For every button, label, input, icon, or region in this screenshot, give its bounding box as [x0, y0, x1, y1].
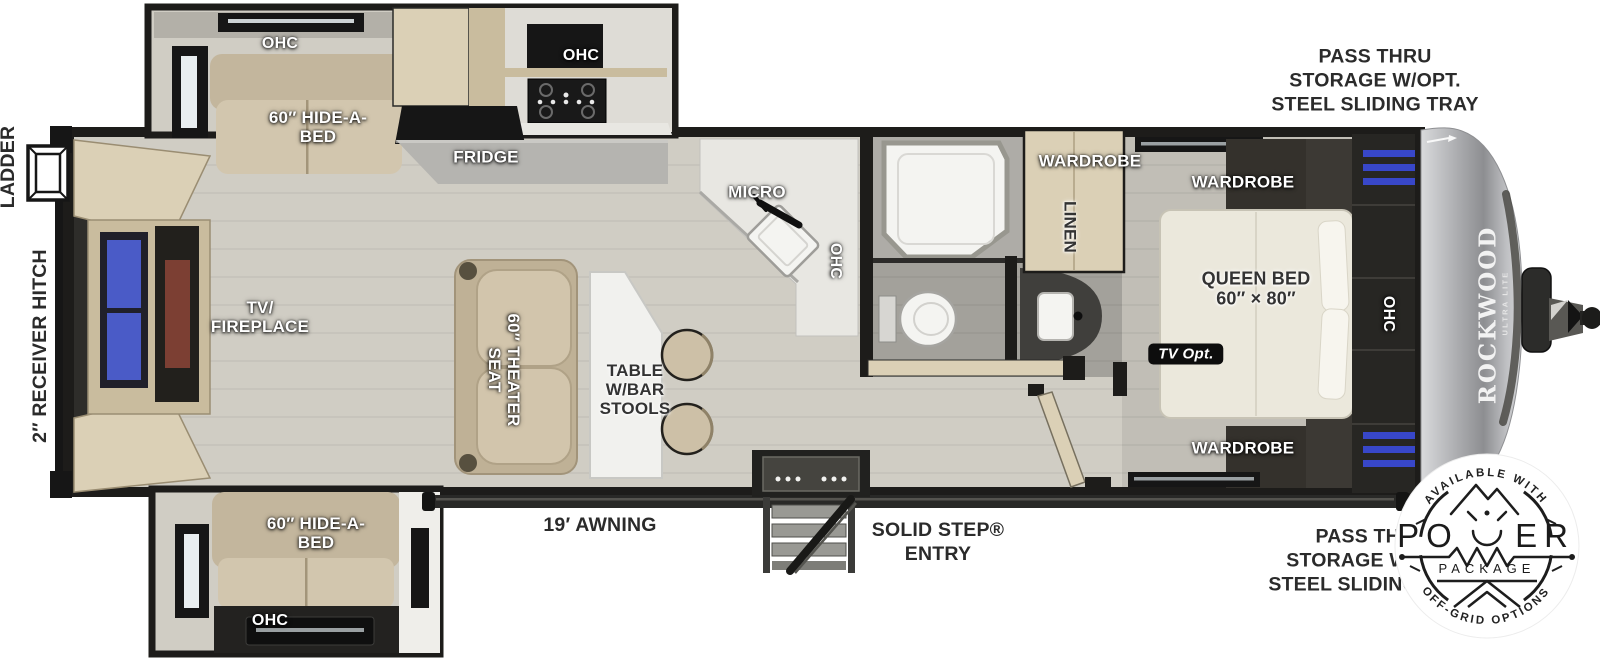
- rv-floorplan-page: PASS THRU STORAGE W/OPT. STEEL SLIDING T…: [0, 0, 1600, 661]
- power-package-badge: AVAILABLE WITH OFF-GRID OPTIONS PO ER PA…: [0, 0, 1600, 661]
- badge-package-text: PACKAGE: [1439, 561, 1536, 576]
- badge-power-right: ER: [1515, 517, 1575, 554]
- badge-power-left: PO: [1397, 517, 1459, 554]
